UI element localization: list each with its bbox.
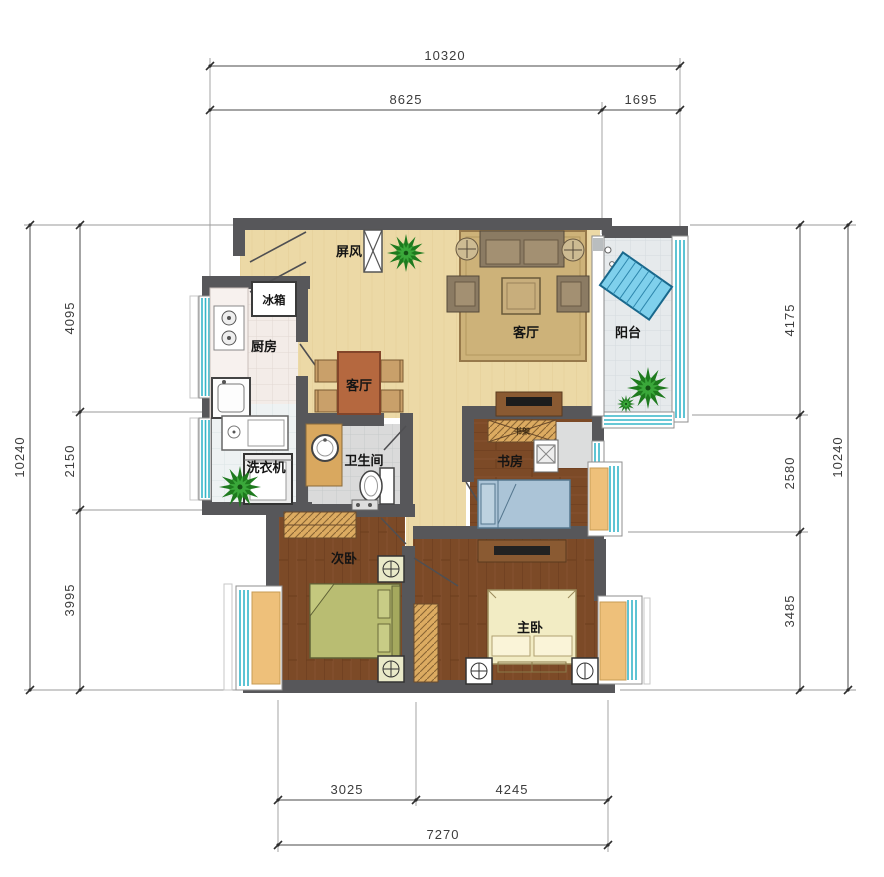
bay-window-study — [588, 462, 622, 536]
pillow — [481, 484, 495, 524]
dim-right-seg1: 4175 — [782, 304, 797, 337]
dim-right-seg3: 3485 — [782, 595, 797, 628]
floorplan-drawing: 10320 8625 1695 10240 4095 2150 3995 417… — [0, 0, 884, 877]
laundry-basin — [222, 416, 288, 450]
label-master: 主卧 — [517, 620, 543, 636]
label-living: 客厅 — [513, 325, 539, 341]
dim-top-seg2: 1695 — [625, 92, 658, 107]
dim-left-overall: 10240 — [12, 436, 27, 477]
label-bathroom: 卫生间 — [344, 453, 383, 469]
dim-right-seg2: 2580 — [782, 457, 797, 490]
pillow — [378, 624, 390, 652]
bay-curtain — [252, 592, 280, 684]
shower-mixer — [352, 500, 378, 510]
bay-window-master — [598, 596, 650, 684]
pillow — [534, 636, 572, 656]
dim-bottom-seg2: 4245 — [496, 782, 529, 797]
label-balcony: 阳台 — [615, 325, 641, 341]
label-bedroom2: 次卧 — [331, 551, 357, 567]
tv — [506, 397, 552, 406]
dim-bottom-seg1: 3025 — [331, 782, 364, 797]
label-dining: 客厅 — [346, 378, 372, 394]
label-bookshelf: 书架 — [514, 426, 530, 436]
label-laundry: 洗衣机 — [246, 460, 285, 476]
master-tv — [494, 546, 550, 555]
dim-right-overall: 10240 — [830, 436, 845, 477]
dim-left-seg3: 3995 — [62, 584, 77, 617]
label-study: 书房 — [497, 454, 523, 470]
label-fridge: 冰箱 — [263, 293, 286, 307]
dim-left-seg1: 4095 — [62, 302, 77, 335]
folding-screen — [364, 230, 382, 272]
dim-bottom-overall: 7270 — [427, 827, 460, 842]
floorplan-canvas: 10320 8625 1695 10240 4095 2150 3995 417… — [0, 0, 884, 877]
label-screen: 屏风 — [336, 245, 362, 260]
headboard — [392, 586, 400, 656]
dim-top-seg1: 8625 — [390, 92, 423, 107]
balcony-sliding-door — [592, 236, 604, 416]
dim-left-seg2: 2150 — [62, 445, 77, 478]
label-kitchen: 厨房 — [251, 339, 277, 355]
master-wardrobe — [414, 604, 438, 682]
pillow — [378, 590, 390, 618]
pillow — [492, 636, 530, 656]
bay-window-left — [224, 584, 282, 690]
dim-top-overall: 10320 — [424, 48, 465, 63]
